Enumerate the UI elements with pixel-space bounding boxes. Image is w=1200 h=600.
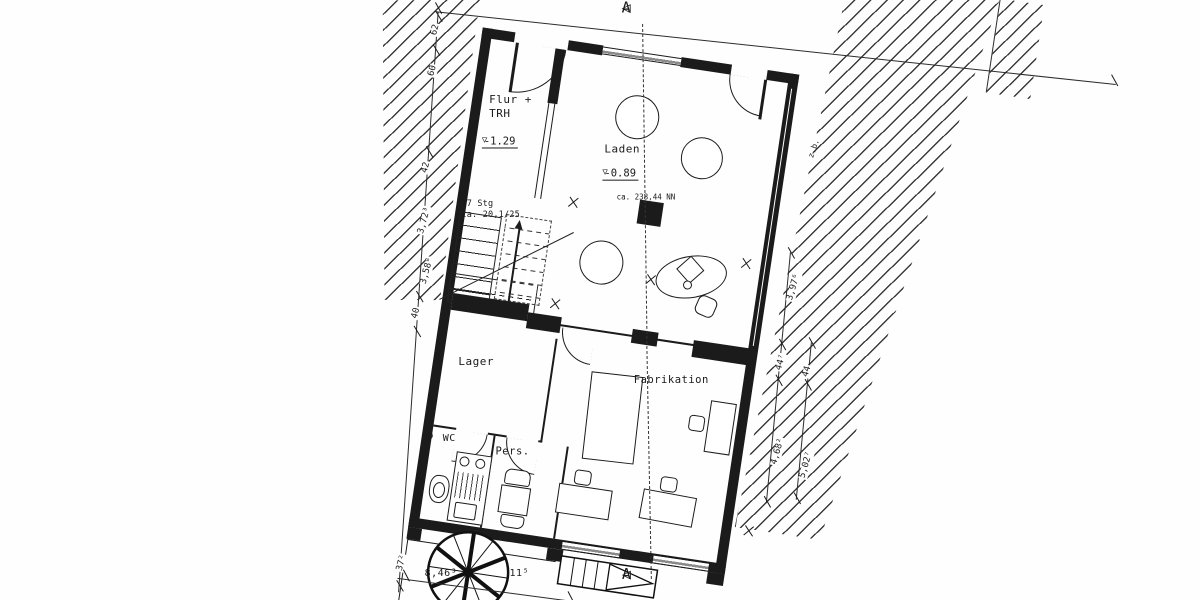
wall-top-mid-segment [567, 40, 603, 55]
room-label-laden: Laden [604, 142, 640, 155]
wall-wc-pers-top-b [488, 433, 507, 438]
dim-tick [403, 570, 410, 582]
table-round-1 [612, 92, 662, 142]
pers-table [497, 484, 531, 516]
axis-mark-3 [740, 257, 753, 270]
dim-tick [568, 591, 575, 600]
axis-mark-5 [743, 525, 756, 538]
stair-note-line2: ca. 20,1/25 [461, 210, 520, 221]
room-label-lager: Lager [458, 355, 494, 368]
floor-plan: 17 Stg ca. 20,1/25 ⊗ [285, 0, 1109, 600]
room-label-wc: WC [443, 433, 456, 444]
desk-bottom-1-chair [573, 469, 592, 486]
room-label-pers: Pers. [495, 445, 529, 457]
dim-label-bottom-1: 11⁵ [510, 568, 530, 579]
section-line-upper [642, 24, 647, 339]
spiral-stair-icon [420, 525, 515, 600]
stair-note-line1: 17 Stg [461, 199, 493, 210]
pers-chair-bottom [499, 513, 525, 529]
pier-3 [691, 340, 751, 365]
floor-plan-sheet: 17 Stg ca. 20,1/25 ⊗ [0, 0, 1200, 600]
desk-right [704, 400, 737, 455]
kitchenette-icon [447, 451, 493, 526]
column-laden [637, 200, 664, 227]
dim-tick [1111, 74, 1118, 86]
dim-label-left-5: 40 [411, 306, 423, 321]
dim-label-bottom-0: 8,46³ [425, 568, 458, 579]
stair-arrow-head [514, 219, 523, 229]
axis-mark-4 [567, 196, 580, 209]
table-round-3 [576, 238, 626, 288]
stub-3 [706, 572, 725, 586]
desk-bottom-1 [555, 483, 613, 521]
stair-run-dashed [494, 214, 552, 306]
desk-bottom-2 [639, 488, 698, 527]
burner-left [459, 456, 470, 467]
section-marker-bottom-triangle: ◁ [622, 565, 633, 583]
wall-flur-laden-thin-b [540, 104, 555, 199]
wall-top-pier [680, 57, 732, 74]
table-round-2 [678, 134, 726, 182]
axis-mark-1 [549, 297, 562, 310]
lager-fab-door-arc [557, 327, 595, 365]
wall-lager-right [540, 339, 557, 442]
burner-right [475, 458, 486, 469]
dim-tick [414, 326, 422, 338]
vent-fan-icon: ⊗ [425, 428, 433, 444]
laden-door-arc [724, 74, 766, 116]
level-value-laden: -0.89 [602, 168, 638, 181]
room-label-flur-line1: Flur + [489, 93, 532, 107]
drainboard [454, 472, 486, 502]
desk-right-chair [688, 414, 706, 432]
room-label-flur-line2: TRH [489, 107, 510, 121]
desk-bottom-2-chair [659, 476, 678, 493]
pier-1 [526, 312, 562, 333]
pier-2 [631, 329, 659, 347]
room-label-fabrikation: Fabrikation [634, 374, 709, 386]
level-value-flur: -1.29 [482, 135, 518, 148]
datum-laden: ca. 238,44 NN [617, 192, 676, 201]
section-marker-top-triangle: ◁ [622, 0, 633, 17]
wall-wc-pers-top-a [433, 425, 456, 430]
sink-basin [453, 502, 477, 521]
hatch-neighbor-right [735, 0, 1016, 558]
